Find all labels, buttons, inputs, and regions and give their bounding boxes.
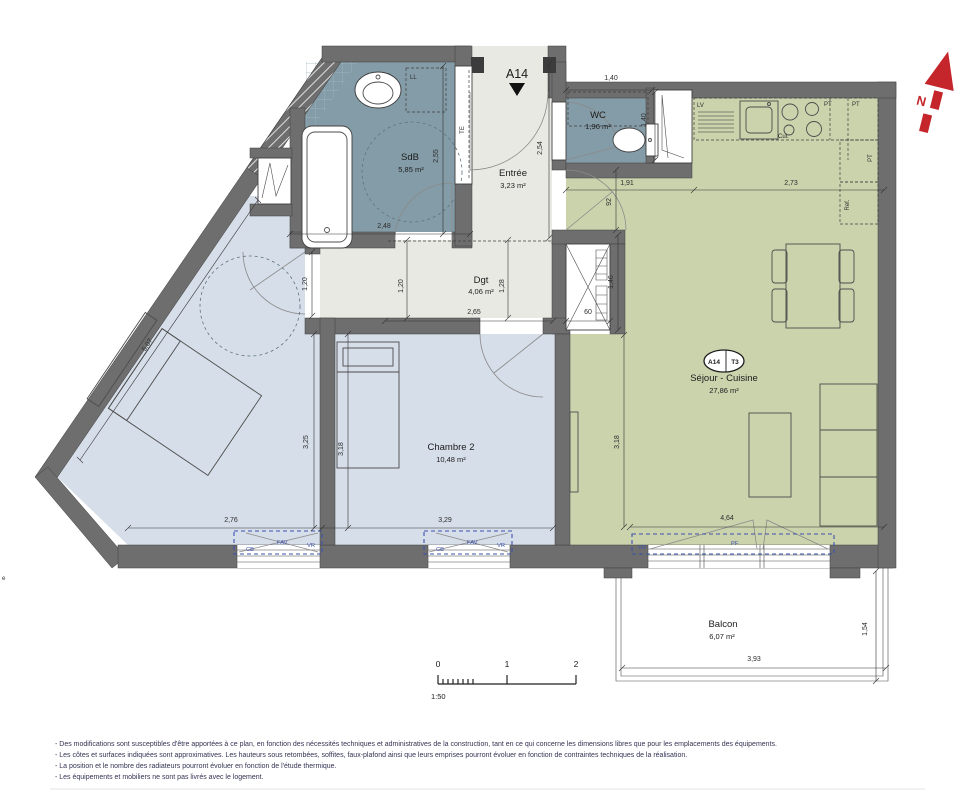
wall-ch2-sejour <box>555 334 570 545</box>
north-arrow-shaft-a <box>930 90 943 110</box>
room-area-dgt: 4,06 m² <box>468 287 494 296</box>
toilet-tank <box>646 124 658 156</box>
wall-top-sdb <box>322 46 470 62</box>
room-area-entree: 3,23 m² <box>500 181 526 190</box>
room-label-sejour: Séjour - Cuisine <box>690 373 758 384</box>
dim-ch1-right: 3,25 <box>303 435 310 449</box>
dim-sdb-right: 2,55 <box>433 149 440 163</box>
scale-bar: 0 1 2 1:50 <box>431 659 579 701</box>
fridge-label: Ref. <box>845 199 851 210</box>
dim-line-balcon <box>619 665 889 671</box>
room-label-wc: WC <box>590 110 606 121</box>
dim-ch1-bottom: 2,76 <box>224 517 238 524</box>
room-label-entree: Entrée <box>499 168 527 179</box>
room-area-chambre2: 10,48 m² <box>436 455 466 464</box>
dim-92: 92 <box>606 198 613 206</box>
wall-niche-bottom <box>250 204 292 216</box>
dim-dgt-left: 1,20 <box>398 279 405 293</box>
north-label: N <box>915 93 928 110</box>
window3-label-vr: VR <box>638 545 646 551</box>
dim-sdb-bottom: 2,48 <box>377 223 391 230</box>
dim-entree-right: 2,54 <box>537 141 544 155</box>
scale-tick-1: 1 <box>505 659 510 669</box>
north-arrow: N <box>910 47 963 137</box>
toilet-bowl <box>613 128 645 152</box>
wall-te-bottom <box>455 184 472 246</box>
room-label-balcon: Balcon <box>708 619 737 630</box>
badge-unit: A14 <box>708 359 720 366</box>
entrance-unit-label: A14 <box>506 67 528 81</box>
badge-type: T3 <box>731 359 739 366</box>
plan-notes: - Des modifications sont susceptibles d'… <box>50 741 925 789</box>
wall-te-top <box>455 46 472 66</box>
room-area-sejour: 27,86 m² <box>709 386 739 395</box>
pt-label-b: PT <box>852 102 860 108</box>
unit-badge: A14 T3 <box>704 350 744 372</box>
wall-wc-bottom <box>566 163 692 178</box>
dim-balcon-bottom: 3,93 <box>747 656 761 663</box>
dim-dgt-width: 2,65 <box>467 309 481 316</box>
window2-label-fav: FAV <box>467 540 478 546</box>
note-line-3: - La position et le nombre des radiateur… <box>55 763 337 770</box>
wall-ch1-ch2 <box>320 318 335 545</box>
wall-right <box>878 82 896 568</box>
dim-ch1-door: 1,20 <box>302 277 309 291</box>
north-arrow-shaft-b <box>919 113 932 133</box>
duct-niche <box>258 158 291 204</box>
room-label-sdb: SdB <box>401 152 419 163</box>
room-area-wc: 1,96 m² <box>585 122 611 131</box>
scale-bar-line <box>438 675 576 684</box>
scale-tick-0: 0 <box>436 659 441 669</box>
room-label-chambre2: Chambre 2 <box>428 442 475 453</box>
room-area-sdb: 5,85 m² <box>398 165 424 174</box>
dim-balcon-right: 1,54 <box>862 622 869 636</box>
te-label: TE <box>460 126 466 134</box>
dim-dgt-right: 1,28 <box>499 279 506 293</box>
balcony-pier-right <box>830 568 860 578</box>
wall-entree-wc-b <box>552 160 566 170</box>
dim-line-ch1-door <box>309 249 315 319</box>
window2-label-cb: CB <box>436 547 444 553</box>
note-line-1: - Des modifications sont susceptibles d'… <box>55 741 777 748</box>
dim-placard: 60 <box>584 309 592 316</box>
shaft-box <box>654 90 692 163</box>
bathtub <box>302 126 352 248</box>
dim-line-balcon-right <box>873 568 879 684</box>
note-line-4: - Les équipements et mobiliers ne sont p… <box>55 774 264 781</box>
window3-label-pf: PF <box>731 541 739 547</box>
wall-niche-top <box>250 148 292 158</box>
washbasin <box>355 72 401 108</box>
floor-plan-drawing: 2,48 1,40 1,91 2,73 2,65 60 2,76 3,29 4,… <box>0 0 979 800</box>
room-chambre1 <box>48 196 320 545</box>
north-arrow-head-icon <box>925 48 963 91</box>
scale-ratio: 1:50 <box>431 692 446 701</box>
dim-sejour-left: 3,18 <box>614 435 621 449</box>
edge-cropped-text: e <box>2 576 6 582</box>
balcony <box>604 568 888 681</box>
window2-label-vr: VR <box>497 543 505 549</box>
dim-ch2-left: 3,18 <box>338 442 345 456</box>
entrance-jamb-right <box>543 57 556 73</box>
cuisine-label: Cui. <box>778 134 789 140</box>
dim-wc-top: 1,40 <box>604 75 618 82</box>
window3-opening <box>648 545 830 568</box>
te-closet <box>455 66 472 184</box>
room-label-dgt: Dgt <box>474 275 489 286</box>
pt-label-a: PT <box>824 102 832 108</box>
room-dgt <box>320 240 552 318</box>
wall-ch1-door-stub <box>305 248 320 254</box>
pt-label-c: PT <box>868 154 874 162</box>
balcony-pier-left <box>604 568 632 578</box>
balcony-railing <box>616 568 888 681</box>
entrance-jamb-left <box>471 57 484 73</box>
dishwasher-label: LV <box>697 103 704 109</box>
washer-label: LL <box>410 75 417 81</box>
scale-tick-2: 2 <box>574 659 579 669</box>
dim-sejour-bottom: 4,64 <box>720 515 734 522</box>
dim-placard-right: 1,46 <box>608 275 615 289</box>
window1-label-vr: VR <box>307 543 315 549</box>
room-area-balcon: 6,07 m² <box>709 632 735 641</box>
wc-door-gap <box>552 102 566 160</box>
dim-ch2-bottom: 3,29 <box>438 517 452 524</box>
dim-kitchen-left: 1,91 <box>620 180 634 187</box>
window1-label-cb: CB <box>246 547 254 553</box>
window1-label-fav: FAV <box>277 540 288 546</box>
note-line-2: - Les côtes et surfaces indiquées sont a… <box>55 752 687 759</box>
floor-plan-page: 2,48 1,40 1,91 2,73 2,65 60 2,76 3,29 4,… <box>0 0 979 800</box>
dim-wc-right: 1,40 <box>641 113 648 127</box>
dim-kitchen-right: 2,73 <box>784 180 798 187</box>
